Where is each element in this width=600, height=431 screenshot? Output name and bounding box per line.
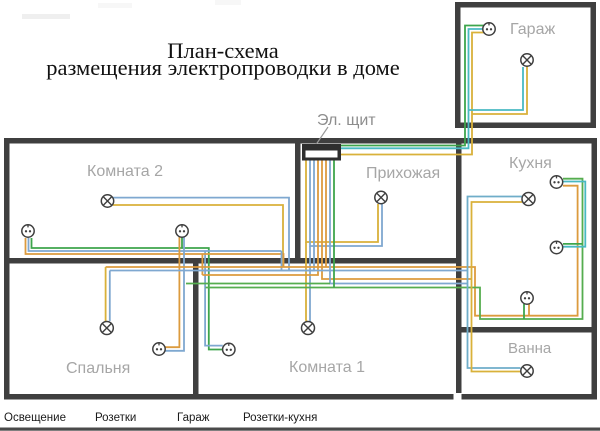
svg-text:Комната 2: Комната 2: [87, 163, 163, 180]
svg-text:Спальня: Спальня: [66, 360, 130, 377]
svg-text:Розетки: Розетки: [95, 412, 136, 424]
svg-text:Комната 1: Комната 1: [289, 359, 365, 376]
svg-text:Освещение: Освещение: [4, 412, 66, 424]
svg-text:Прихожая: Прихожая: [366, 165, 440, 182]
svg-text:Розетки-кухня: Розетки-кухня: [243, 412, 317, 424]
svg-text:Гараж: Гараж: [510, 21, 555, 38]
svg-text:Гараж: Гараж: [177, 412, 210, 424]
svg-text:Кухня: Кухня: [509, 155, 552, 172]
svg-text:Эл. щит: Эл. щит: [317, 112, 376, 129]
svg-text:Ванна: Ванна: [508, 340, 552, 357]
svg-text:размещения электропроводки в д: размещения электропроводки в доме: [46, 55, 400, 80]
